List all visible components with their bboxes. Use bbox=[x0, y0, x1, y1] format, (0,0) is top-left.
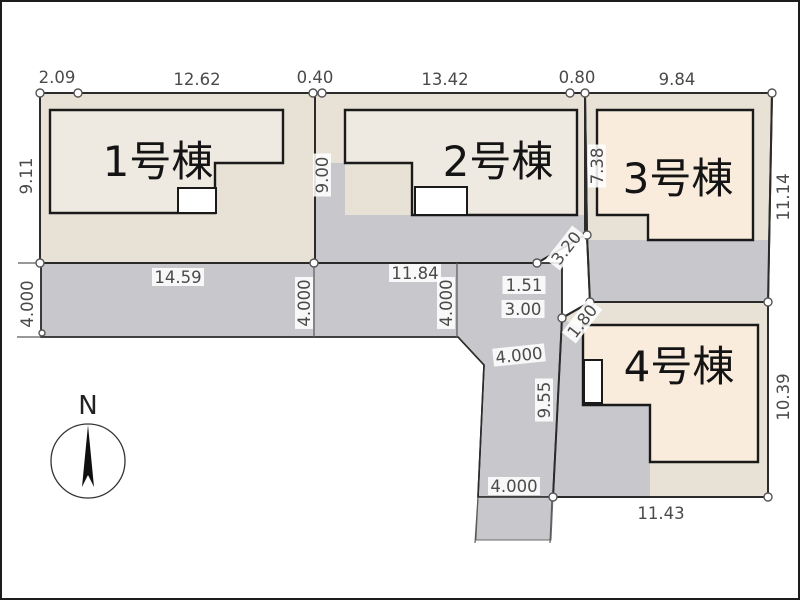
road-extension bbox=[476, 497, 553, 540]
site-plan: 1号棟 2号棟 3号棟 4号棟 N 2.0912.620.4013.420.80… bbox=[0, 0, 800, 600]
site-plan-drawing: 1号棟 2号棟 3号棟 4号棟 N 2.0912.620.4013.420.80… bbox=[0, 0, 800, 600]
dimension-label: 11.43 bbox=[635, 504, 687, 523]
building-3-label: 3号棟 bbox=[623, 154, 734, 203]
svg-text:4.000: 4.000 bbox=[18, 280, 37, 327]
svg-text:7.38: 7.38 bbox=[588, 148, 607, 185]
dimension-label: 10.39 bbox=[774, 371, 793, 423]
svg-text:4.000: 4.000 bbox=[490, 477, 537, 496]
building-2-porch bbox=[415, 187, 467, 215]
dimension-label: 2.09 bbox=[36, 68, 79, 87]
dimension-label: 3.00 bbox=[502, 300, 545, 319]
dimension-label: 13.42 bbox=[419, 70, 471, 89]
building-1-label: 1号棟 bbox=[103, 137, 214, 186]
building-2-label: 2号棟 bbox=[443, 137, 554, 186]
building-4-porch bbox=[584, 360, 602, 403]
dimension-label: 4.000 bbox=[295, 277, 314, 329]
lot-3-gray-area bbox=[589, 240, 768, 302]
dimension-label: 9.00 bbox=[313, 154, 332, 197]
dimension-label: 4.000 bbox=[488, 477, 540, 496]
dimension-label: 1.51 bbox=[503, 276, 546, 295]
svg-text:14.59: 14.59 bbox=[154, 268, 201, 287]
dimension-label: 7.38 bbox=[588, 145, 607, 188]
svg-text:3.00: 3.00 bbox=[505, 300, 542, 319]
dimension-label: 0.40 bbox=[294, 68, 337, 87]
building-4-label: 4号棟 bbox=[624, 342, 735, 391]
svg-text:13.42: 13.42 bbox=[421, 70, 468, 89]
dimension-label: 12.62 bbox=[171, 70, 223, 89]
svg-text:9.00: 9.00 bbox=[313, 157, 332, 194]
dimension-label: 0.80 bbox=[556, 68, 599, 87]
dimension-label: 9.55 bbox=[535, 379, 554, 422]
svg-text:9.55: 9.55 bbox=[535, 382, 554, 419]
dimension-label: 4.000 bbox=[18, 278, 37, 330]
building-1-porch bbox=[178, 188, 216, 213]
compass-north-label: N bbox=[78, 391, 97, 421]
svg-text:0.40: 0.40 bbox=[297, 68, 334, 87]
svg-text:9.11: 9.11 bbox=[17, 158, 36, 195]
svg-text:1.51: 1.51 bbox=[506, 276, 543, 295]
svg-text:9.84: 9.84 bbox=[659, 70, 696, 89]
dimension-label: 11.84 bbox=[389, 264, 441, 283]
svg-text:2.09: 2.09 bbox=[39, 68, 76, 87]
dimension-label: 14.59 bbox=[152, 268, 204, 287]
compass: N bbox=[51, 391, 125, 498]
svg-text:10.39: 10.39 bbox=[774, 373, 793, 420]
svg-text:4.000: 4.000 bbox=[295, 279, 314, 326]
svg-text:11.14: 11.14 bbox=[774, 173, 793, 220]
svg-text:11.43: 11.43 bbox=[637, 504, 684, 523]
dimension-label: 11.14 bbox=[774, 171, 793, 223]
svg-text:4.000: 4.000 bbox=[437, 279, 456, 326]
svg-text:12.62: 12.62 bbox=[173, 70, 220, 89]
dimension-label: 9.11 bbox=[17, 155, 36, 198]
svg-text:0.80: 0.80 bbox=[559, 68, 596, 87]
compass-needle-icon bbox=[82, 425, 94, 487]
dimension-label: 9.84 bbox=[656, 70, 699, 89]
dimension-label: 4.000 bbox=[437, 277, 456, 329]
svg-text:11.84: 11.84 bbox=[391, 264, 438, 283]
